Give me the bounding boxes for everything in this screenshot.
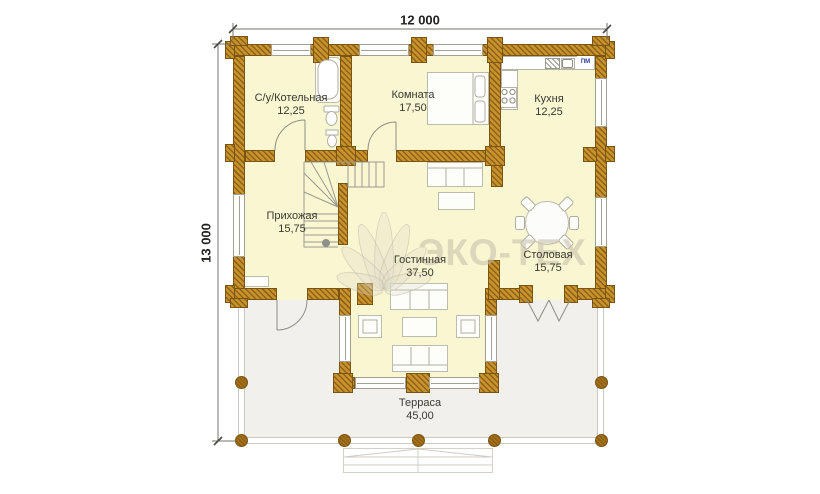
room-name: Столовая [523, 249, 572, 261]
room-label-bedroom: Комната 17,50 [391, 89, 434, 115]
dishwasher-marker: ПМ [577, 56, 594, 68]
room-area: 15,75 [534, 262, 562, 274]
room-area: 12,25 [277, 105, 305, 117]
room-label-living: Гостинная 37,50 [394, 254, 446, 280]
room-label-terrace: Терраса 45,00 [399, 397, 441, 423]
room-name: С/у/Котельная [255, 92, 328, 104]
floor-plan: ЭКО-ТЕХ С/у/Котельная 12,25 Комната 17,5… [0, 0, 820, 494]
room-area: 37,50 [406, 267, 434, 279]
room-label-hallway: Прихожая 15,75 [267, 210, 318, 236]
room-name: Гостинная [394, 254, 446, 266]
room-label-bathroom: С/у/Котельная 12,25 [255, 92, 328, 118]
room-area: 15,75 [278, 223, 306, 235]
room-label-dining: Столовая 15,75 [523, 249, 572, 275]
dimension-width: 12 000 [400, 13, 440, 28]
room-area: 45,00 [406, 410, 434, 422]
dimension-height: 13 000 [199, 223, 214, 263]
room-name: Комната [391, 89, 434, 101]
room-area: 17,50 [399, 102, 427, 114]
room-name: Кухня [534, 93, 563, 105]
room-name: Прихожая [267, 210, 318, 222]
room-name: Терраса [399, 397, 441, 409]
room-label-kitchen: Кухня 12,25 [534, 93, 563, 119]
stair-start-marker [322, 239, 330, 247]
room-area: 12,25 [535, 106, 563, 118]
